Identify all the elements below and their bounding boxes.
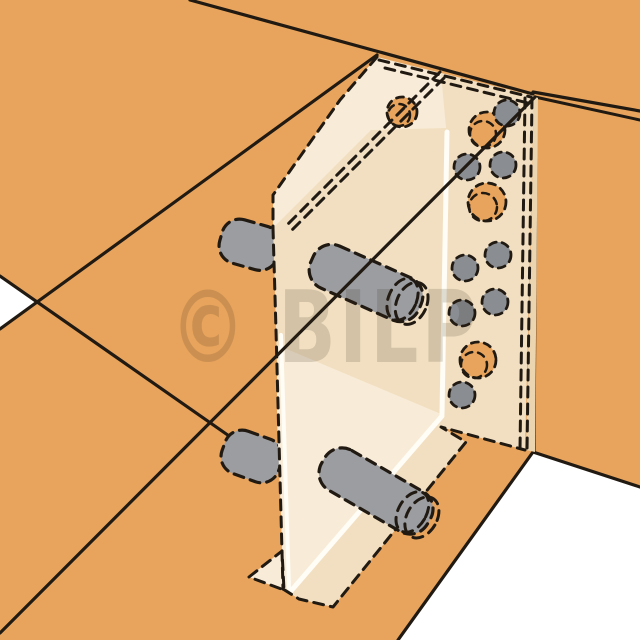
illustration-stage: © BILP <box>0 0 640 640</box>
fastener-pin-6 <box>482 289 508 315</box>
illustration-canvas: © BILP <box>0 0 640 640</box>
fastener-pin-4 <box>485 242 511 268</box>
plate-hole-2 <box>468 183 506 221</box>
fastener-pin-3 <box>490 152 516 178</box>
fastener-pin-1 <box>494 100 520 126</box>
watermark-text: © BILP <box>170 269 480 386</box>
